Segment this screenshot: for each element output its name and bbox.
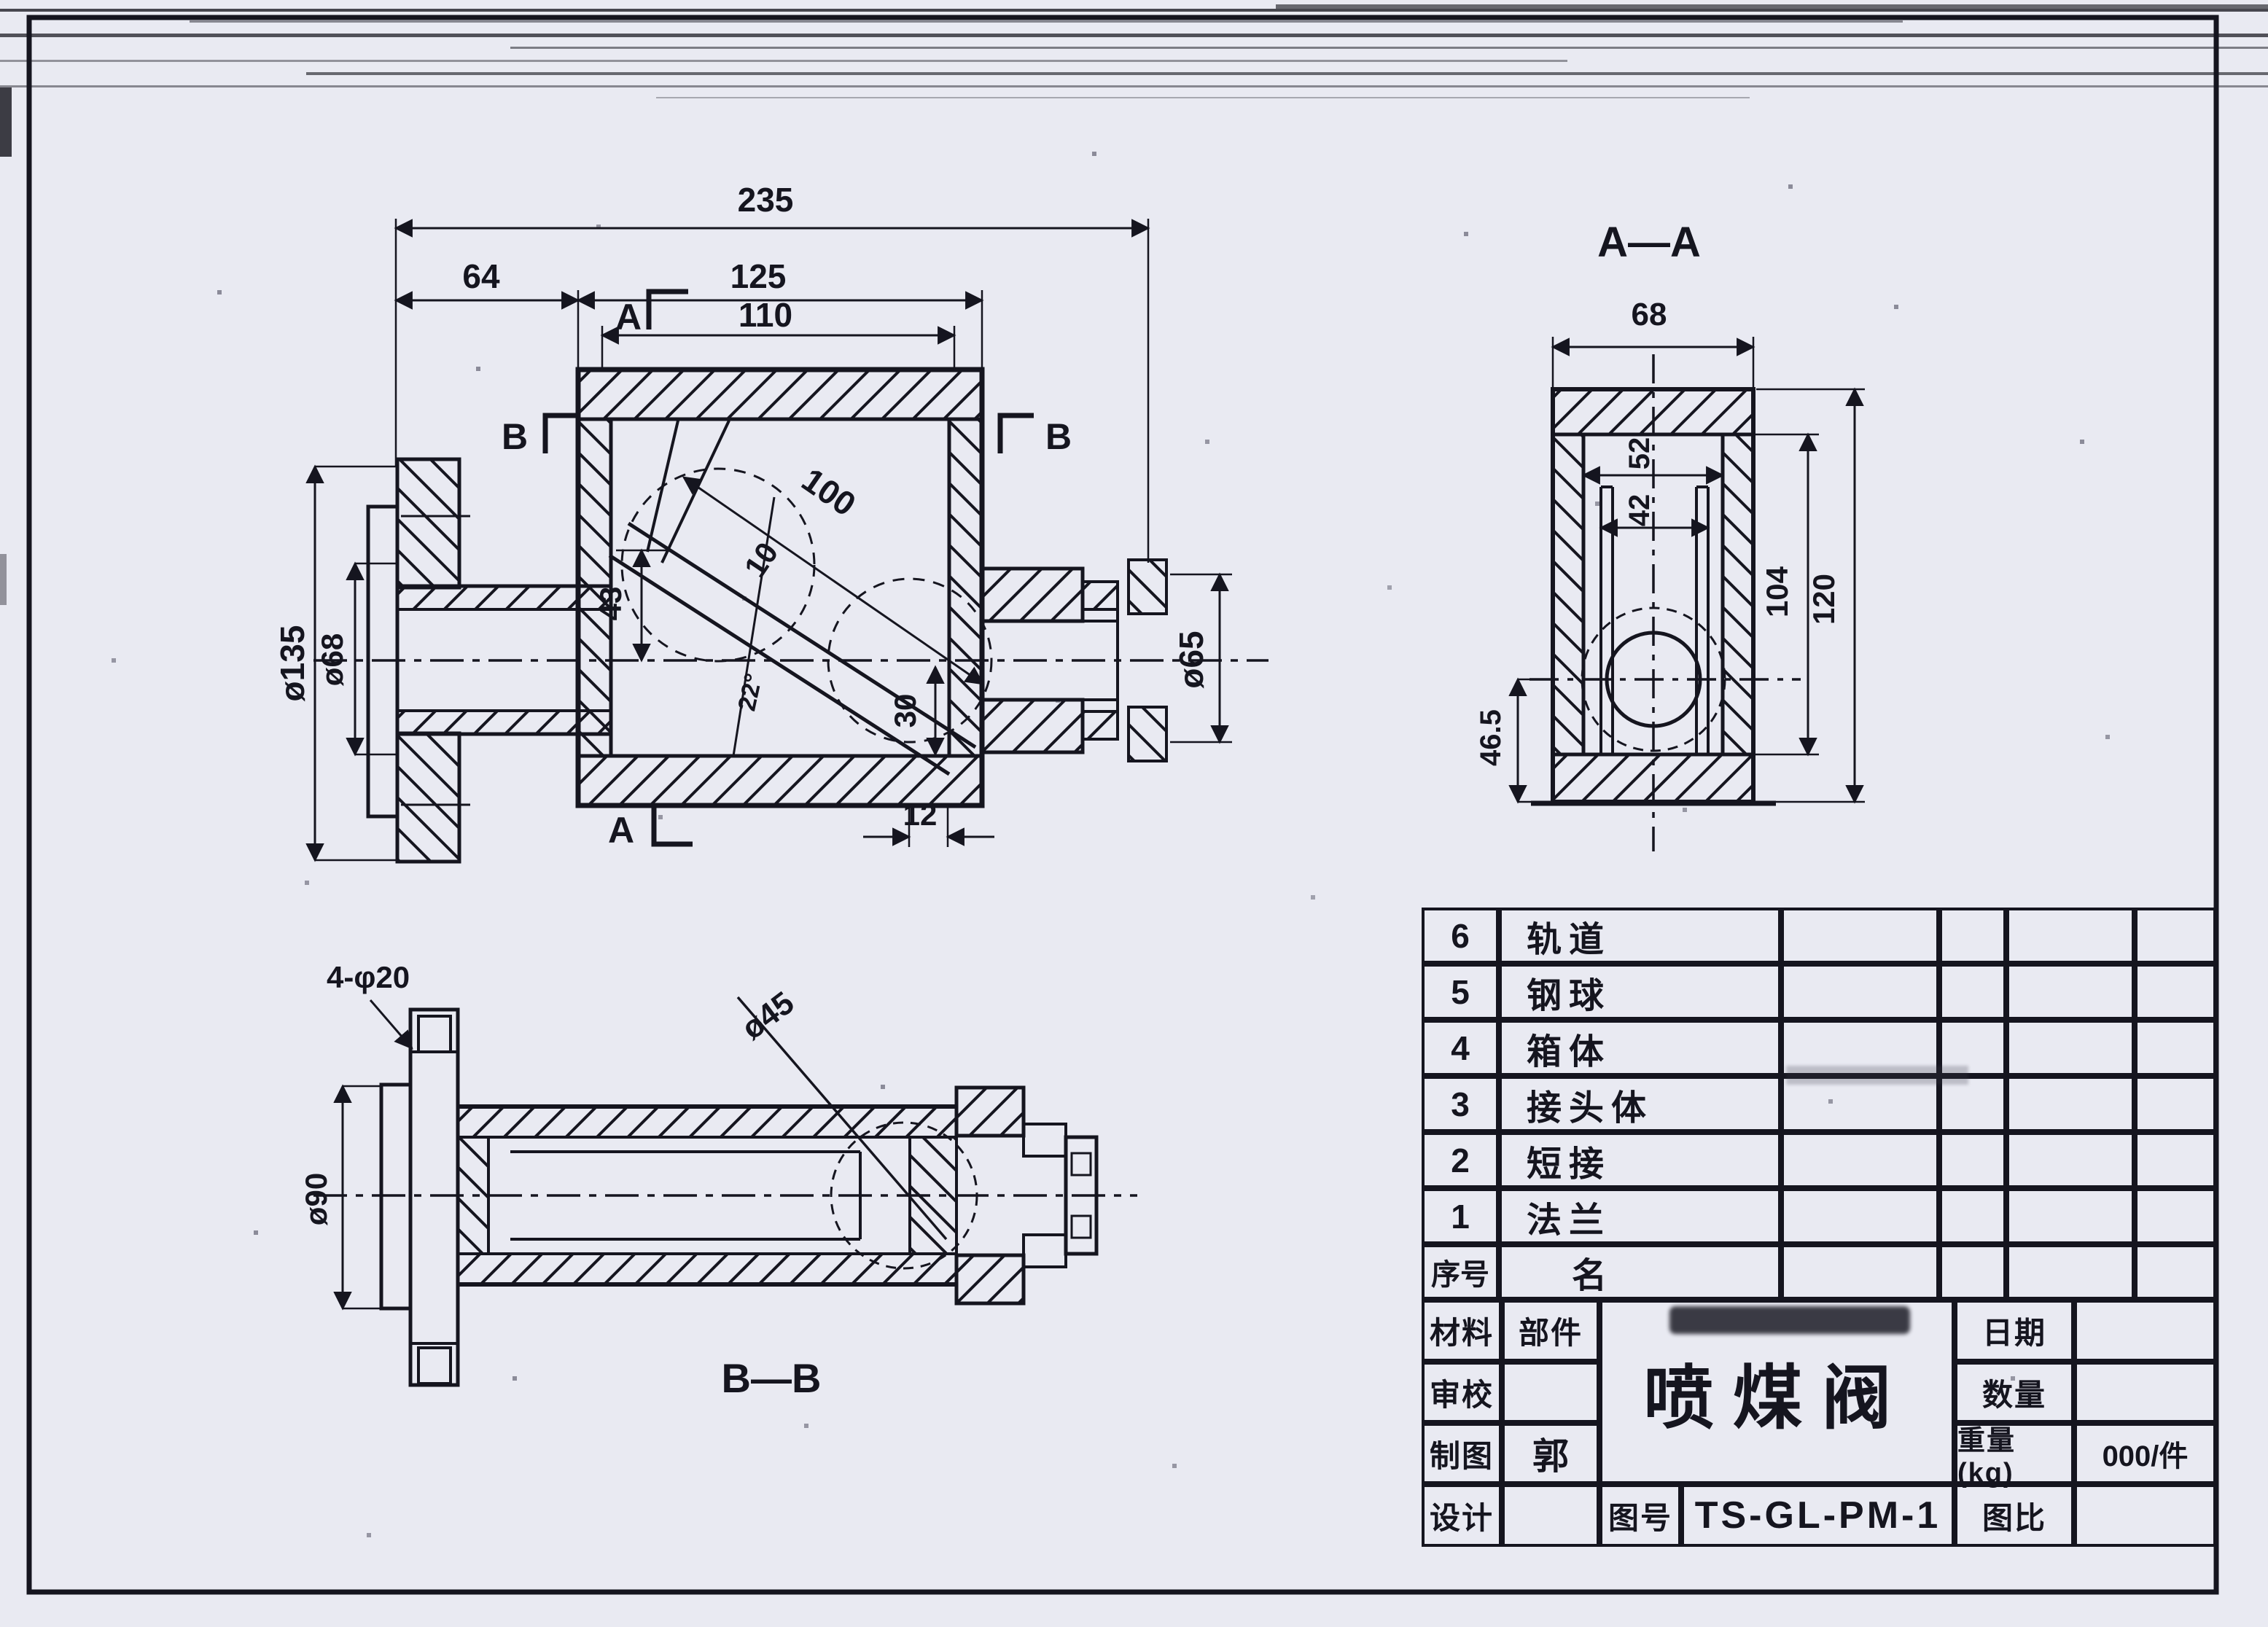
scan-smudge xyxy=(1786,1066,1968,1085)
dim-aa-ball-to-base: 46.5 xyxy=(1475,709,1507,766)
dim-outlet-od: ø65 xyxy=(1172,631,1210,688)
part-label: 部件 xyxy=(1502,1300,1599,1362)
bb-label: B—B xyxy=(722,1355,822,1401)
dim-aa-rail-span: 52 xyxy=(1624,437,1656,470)
dim-outlet-bore: 30 xyxy=(888,694,922,728)
nipple-section xyxy=(1129,707,1166,761)
marker-b-right: B xyxy=(1045,416,1072,457)
design-value xyxy=(1502,1484,1599,1547)
parts-row-empty xyxy=(2135,1132,2216,1188)
parts-row-no: 3 xyxy=(1422,1076,1499,1132)
aa-label: A—A xyxy=(1597,219,1701,266)
parts-row-name: 钢球 xyxy=(1499,964,1781,1020)
parts-row-empty xyxy=(1939,964,2006,1020)
dim-overall-length: 235 xyxy=(738,181,794,219)
parts-row-name: 轨道 xyxy=(1499,908,1781,964)
dim-pipe-od: ø68 xyxy=(315,633,349,686)
dim-flange-od: ø135 xyxy=(273,625,311,702)
main-view: 235 64 125 110 ø135 ø68 43 100 10 30 22°… xyxy=(273,181,1269,862)
parts-row-no: 4 xyxy=(1422,1020,1499,1076)
draft-label: 制图 xyxy=(1422,1423,1502,1484)
parts-row-empty xyxy=(2006,1244,2135,1300)
dim-tube-offset: 43 xyxy=(593,587,628,621)
parts-row-name: 短接 xyxy=(1499,1132,1781,1188)
dim-edge-offset: 12 xyxy=(903,797,938,832)
parts-row-empty xyxy=(2135,964,2216,1020)
draft-value: 郭 xyxy=(1502,1423,1599,1484)
scale-value xyxy=(2074,1484,2216,1547)
parts-row-empty xyxy=(2135,1244,2216,1300)
aa-view: A—A 68 52 42 104 120 46.5 xyxy=(1475,219,1865,851)
parts-row-empty xyxy=(1939,1244,2006,1300)
design-label: 设计 xyxy=(1422,1484,1502,1547)
weight-label: 重量(kg) xyxy=(1955,1423,2074,1484)
dim-aa-inner-height: 104 xyxy=(1760,566,1794,617)
weight-value: 000/件 xyxy=(2074,1423,2216,1484)
quantity-value xyxy=(2074,1362,2216,1423)
parts-row-empty xyxy=(1939,1188,2006,1244)
parts-row-name: 箱体 xyxy=(1499,1020,1781,1076)
parts-header-name: 名 xyxy=(1499,1244,1781,1300)
parts-row-empty xyxy=(1781,1244,1939,1300)
scale-label: 图比 xyxy=(1955,1484,2074,1547)
parts-row-empty xyxy=(1939,1132,2006,1188)
parts-row-empty xyxy=(2006,1076,2135,1132)
parts-row-empty xyxy=(1781,1188,1939,1244)
bb-bolt-hole xyxy=(418,1348,451,1384)
parts-row-name: 接头体 xyxy=(1499,1076,1781,1132)
parts-row-empty xyxy=(2006,1132,2135,1188)
dim-flange-to-box: 64 xyxy=(462,257,500,295)
parts-row-no: 5 xyxy=(1422,964,1499,1020)
parts-row-empty xyxy=(2135,1188,2216,1244)
review-value xyxy=(1502,1362,1599,1423)
bb-flange xyxy=(381,1010,458,1385)
parts-row-empty xyxy=(2135,908,2216,964)
dim-bb-flange-od: ø90 xyxy=(299,1173,333,1225)
parts-row-no: 2 xyxy=(1422,1132,1499,1188)
marker-a-bottom: A xyxy=(608,810,634,851)
dim-aa-outer-height: 120 xyxy=(1807,574,1841,625)
parts-row-no: 6 xyxy=(1422,908,1499,964)
drawing-no-label: 图号 xyxy=(1599,1484,1681,1547)
parts-row-name: 法兰 xyxy=(1499,1188,1781,1244)
marker-b-left: B xyxy=(502,416,528,457)
quantity-label: 数量 xyxy=(1955,1362,2074,1423)
bb-view: 4-φ20 ø90 ø45 B—B xyxy=(299,960,1137,1401)
bb-bolt-hole xyxy=(418,1016,451,1052)
parts-row-empty xyxy=(2006,1020,2135,1076)
drawing-sheet: 235 64 125 110 ø135 ø68 43 100 10 30 22°… xyxy=(0,0,2268,1627)
bb-dim-texts: 4-φ20 ø90 ø45 B—B xyxy=(299,960,821,1401)
parts-row-no: 1 xyxy=(1422,1188,1499,1244)
nipple-section xyxy=(1129,560,1166,614)
review-label: 审校 xyxy=(1422,1362,1502,1423)
scan-smudge xyxy=(1669,1306,1910,1334)
marker-a-top: A xyxy=(615,297,642,338)
date-value xyxy=(2074,1300,2216,1362)
dim-bb-bolt-holes: 4-φ20 xyxy=(327,960,410,994)
parts-row-empty xyxy=(1781,964,1939,1020)
dim-box-width: 125 xyxy=(730,257,787,295)
dim-tube-length: 100 xyxy=(795,461,863,523)
drawing-no-value: TS-GL-PM-1 xyxy=(1681,1484,1955,1547)
dim-angle: 22° xyxy=(733,671,768,714)
material-label: 材料 xyxy=(1422,1300,1502,1362)
parts-row-empty xyxy=(2135,1020,2216,1076)
date-label: 日期 xyxy=(1955,1300,2074,1362)
parts-row-empty xyxy=(2006,1188,2135,1244)
parts-row-empty xyxy=(1939,908,2006,964)
inner-tube xyxy=(609,421,991,774)
parts-row-empty xyxy=(2135,1076,2216,1132)
dim-inner-width: 110 xyxy=(739,296,792,334)
aa-dim-texts: A—A 68 52 42 104 120 46.5 xyxy=(1475,219,1841,766)
parts-header-no: 序号 xyxy=(1422,1244,1499,1300)
parts-row-empty xyxy=(1781,1132,1939,1188)
parts-row-empty xyxy=(1781,908,1939,964)
dim-bb-bore: ø45 xyxy=(735,985,800,1047)
box-body-section xyxy=(578,370,982,805)
ball-position-dashed xyxy=(622,469,814,661)
parts-row-empty xyxy=(2006,908,2135,964)
dim-aa-rail-inner: 42 xyxy=(1624,494,1656,527)
parts-row-empty xyxy=(2006,964,2135,1020)
dim-aa-outer-width: 68 xyxy=(1632,297,1667,332)
